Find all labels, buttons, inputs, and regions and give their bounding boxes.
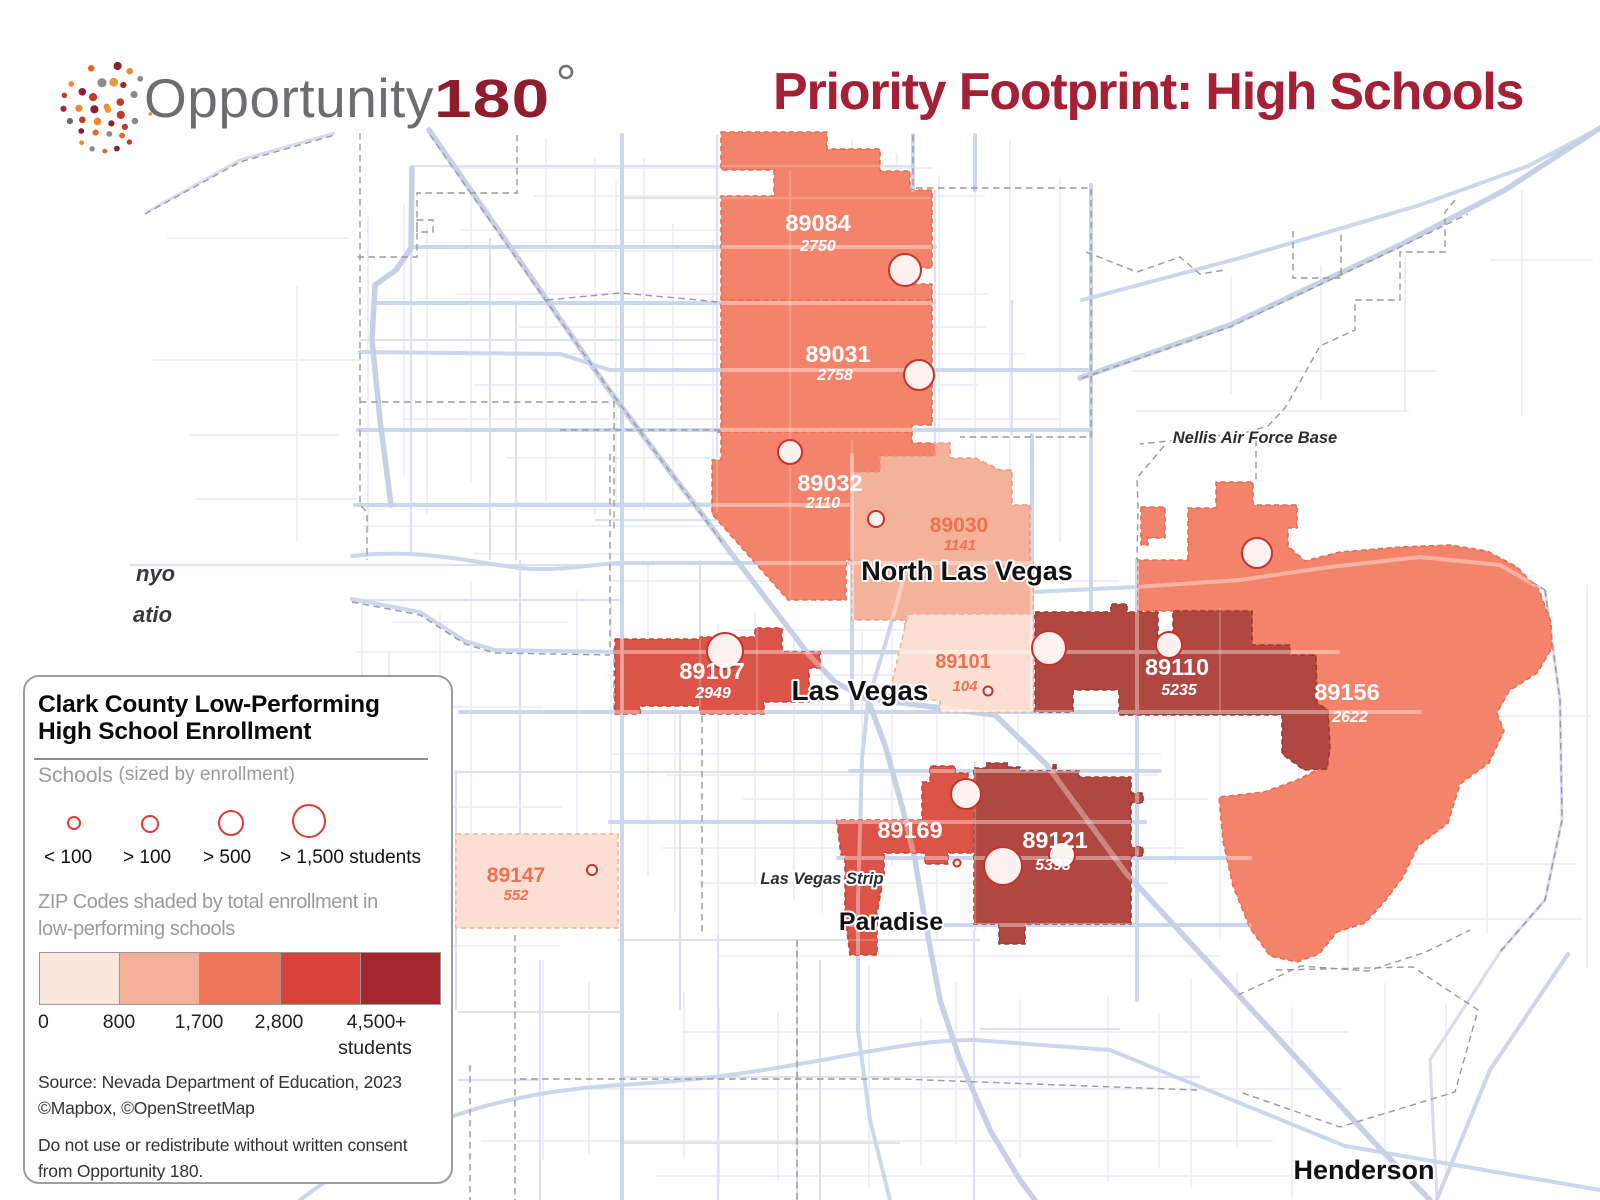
svg-text:2758: 2758 [816, 367, 853, 384]
svg-text:5393: 5393 [1035, 857, 1071, 874]
svg-text:2110: 2110 [805, 495, 841, 512]
svg-text:Las Vegas: Las Vegas [792, 675, 929, 706]
svg-text:2949: 2949 [694, 685, 731, 702]
svg-text:104: 104 [952, 678, 978, 695]
svg-text:Paradise: Paradise [839, 908, 943, 936]
svg-text:atio: atio [133, 602, 172, 627]
svg-text:89156: 89156 [1314, 679, 1379, 705]
svg-text:2622: 2622 [1331, 709, 1368, 726]
svg-text:89121: 89121 [1022, 827, 1087, 853]
svg-text:89031: 89031 [805, 341, 870, 367]
svg-text:nyo: nyo [136, 561, 175, 586]
svg-text:Nellis Air Force Base: Nellis Air Force Base [1173, 429, 1337, 447]
svg-text:Las Vegas Strip: Las Vegas Strip [760, 870, 883, 888]
svg-text:89110: 89110 [1145, 654, 1209, 680]
svg-text:North Las Vegas: North Las Vegas [861, 556, 1073, 586]
svg-text:89107: 89107 [679, 658, 744, 684]
svg-text:2750: 2750 [799, 238, 836, 255]
svg-text:89084: 89084 [785, 210, 850, 236]
svg-text:89030: 89030 [930, 514, 988, 537]
svg-text:5235: 5235 [1161, 682, 1198, 699]
svg-text:1141: 1141 [944, 537, 976, 554]
svg-text:89169: 89169 [877, 817, 942, 843]
svg-text:Henderson: Henderson [1293, 1155, 1434, 1185]
svg-text:89032: 89032 [797, 470, 862, 496]
svg-text:89101: 89101 [935, 651, 991, 673]
svg-text:89147: 89147 [487, 864, 545, 887]
svg-text:552: 552 [503, 887, 529, 904]
